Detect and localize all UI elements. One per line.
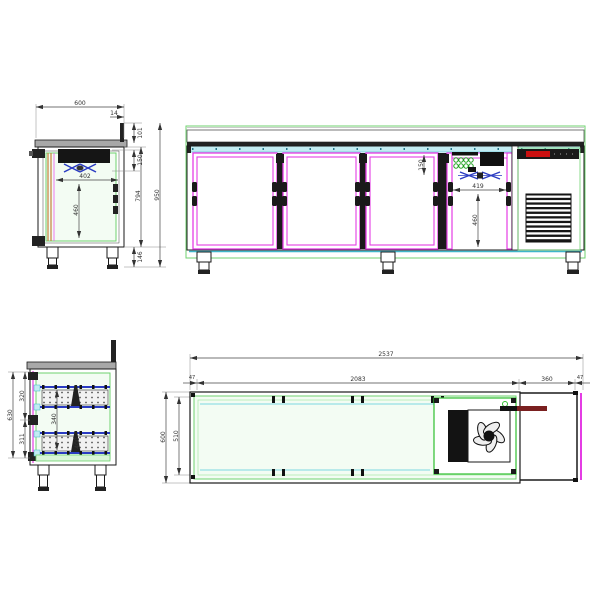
worktop [27, 362, 116, 369]
dim-evap-zone: 150 [137, 154, 144, 166]
dim-top-width: 600 [74, 100, 86, 107]
leg [197, 252, 211, 274]
dim-splash-offset: 14 [110, 110, 118, 117]
hinge-top [32, 149, 45, 158]
dim-leg-height: 146 [137, 251, 144, 263]
controller-display [526, 151, 550, 157]
dim-upper-opening: 320 [19, 390, 26, 402]
drawing-canvas: 600 14 101 150 402 460 794 950 146 [0, 0, 600, 600]
leg [38, 465, 49, 491]
dim-inner-bottom: 400 [74, 437, 81, 449]
dim-total-height: 950 [154, 189, 161, 201]
dim-inner-height: 460 [73, 204, 80, 216]
door-2 [283, 153, 360, 249]
dim-body-length: 2083 [350, 376, 365, 383]
dim-body-height: 794 [135, 190, 142, 202]
drain-rod [500, 406, 517, 411]
drawer-section-view: 320 311 630 340 400 [7, 340, 116, 491]
leg [566, 252, 580, 274]
worktop [35, 140, 127, 147]
condenser-block [448, 410, 468, 462]
evaporator-coil [454, 158, 473, 168]
leg [381, 252, 395, 274]
dim-inner-top: 340 [51, 413, 58, 425]
dim-inner-width: 419 [472, 183, 484, 190]
door-3 [366, 153, 438, 249]
backsplash [120, 123, 124, 142]
evaporator-box [480, 152, 504, 166]
dim-left-end: 47 [189, 375, 195, 381]
backsplash [111, 340, 116, 364]
dim-extension-length: 360 [541, 376, 553, 383]
dim-splash-height: 101 [137, 127, 144, 139]
machine-compartment [512, 146, 580, 250]
technical-drawing: 600 14 101 150 402 460 794 950 146 [0, 0, 600, 600]
leg [47, 247, 58, 269]
evaporator-box [58, 149, 110, 163]
dim-depth: 600 [160, 431, 167, 443]
dim-right-end: 47 [577, 375, 583, 381]
dim-total-length: 2537 [378, 351, 393, 358]
hinge-bottom [32, 236, 45, 246]
worktop-front [187, 130, 584, 142]
dim-inner-height: 460 [472, 214, 479, 226]
dim-inner-width: 402 [79, 173, 91, 180]
shelf-clips [113, 184, 118, 214]
door-1 [193, 153, 277, 249]
dim-lower-opening: 311 [19, 433, 26, 445]
compartment-4 [447, 152, 512, 249]
leg [95, 465, 106, 491]
condenser-grille [526, 194, 571, 242]
front-elevation-view: 150 419 460 [186, 126, 585, 274]
leg [107, 247, 118, 269]
dim-inner-depth: 510 [173, 430, 180, 442]
condensing-unit [434, 398, 547, 474]
side-section-view: 600 14 101 150 402 460 794 950 146 [29, 100, 166, 269]
dim-evap-zone: 150 [418, 159, 425, 171]
mullion [438, 153, 447, 249]
dim-total-opening: 630 [7, 409, 14, 421]
plan-view: 2537 47 2083 360 47 600 510 [160, 351, 590, 483]
